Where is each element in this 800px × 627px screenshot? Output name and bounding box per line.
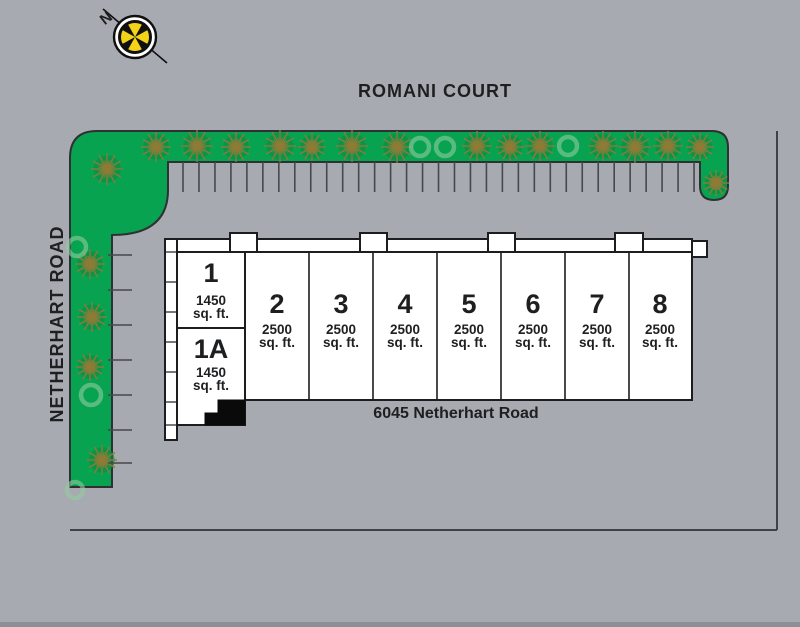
unit-area-unit-text: sq. ft. — [451, 335, 487, 350]
tree-trunk — [350, 144, 355, 149]
tree-trunk — [195, 144, 200, 149]
unit-area-unit-text: sq. ft. — [515, 335, 551, 350]
tree-trunk — [666, 144, 671, 149]
tree-trunk — [105, 167, 110, 172]
unit-number-text: 1 — [203, 258, 218, 288]
tree-trunk — [234, 145, 239, 150]
tree-trunk — [395, 145, 400, 150]
tree-trunk — [154, 145, 159, 150]
tree-trunk — [538, 144, 543, 149]
building-end-cap — [692, 241, 707, 257]
vestibule-bumpout — [488, 233, 515, 252]
building-left-walkway — [165, 239, 177, 440]
unit-number-text: 5 — [461, 289, 476, 319]
unit-number-text: 1A — [194, 334, 229, 364]
unit-area-unit-text: sq. ft. — [259, 335, 295, 350]
unit-number-text: 8 — [652, 289, 667, 319]
unit-number-text: 4 — [397, 289, 412, 319]
unit-number-text: 7 — [589, 289, 604, 319]
road-label-romani-court: ROMANI COURT — [358, 81, 512, 101]
vestibule-bumpout — [360, 233, 387, 252]
tree-trunk — [601, 144, 606, 149]
tree-trunk — [475, 144, 480, 149]
unit-area-unit-text: sq. ft. — [193, 306, 229, 321]
road-label-netherhart-road: NETHERHART ROAD — [47, 226, 67, 423]
tree-trunk — [278, 144, 283, 149]
unit-area-unit-text: sq. ft. — [193, 378, 229, 393]
tree-trunk — [310, 145, 315, 150]
tree-trunk — [714, 181, 719, 186]
unit-number-text: 3 — [333, 289, 348, 319]
tree-trunk — [100, 458, 105, 463]
tree-trunk — [88, 365, 93, 370]
site-plan-page: N ROMANI COURT NETHERHART ROAD 11450sq. … — [0, 0, 800, 622]
building-address-label: 6045 Netherhart Road — [373, 405, 538, 422]
unit-label: 1A1450sq. ft. — [193, 334, 229, 393]
tree-trunk — [88, 262, 93, 267]
vestibule-bumpout — [230, 233, 257, 252]
unit-area-unit-text: sq. ft. — [387, 335, 423, 350]
site-plan-drawing: N ROMANI COURT NETHERHART ROAD 11450sq. … — [0, 0, 800, 622]
tree-trunk — [633, 145, 638, 150]
tree-trunk — [90, 315, 95, 320]
unit-number-text: 2 — [269, 289, 284, 319]
unit-area-unit-text: sq. ft. — [323, 335, 359, 350]
tree-trunk — [508, 145, 513, 150]
unit-area-unit-text: sq. ft. — [579, 335, 615, 350]
tree-trunk — [698, 145, 703, 150]
vestibule-bumpout — [615, 233, 643, 252]
unit-number-text: 6 — [525, 289, 540, 319]
unit-area-unit-text: sq. ft. — [642, 335, 678, 350]
